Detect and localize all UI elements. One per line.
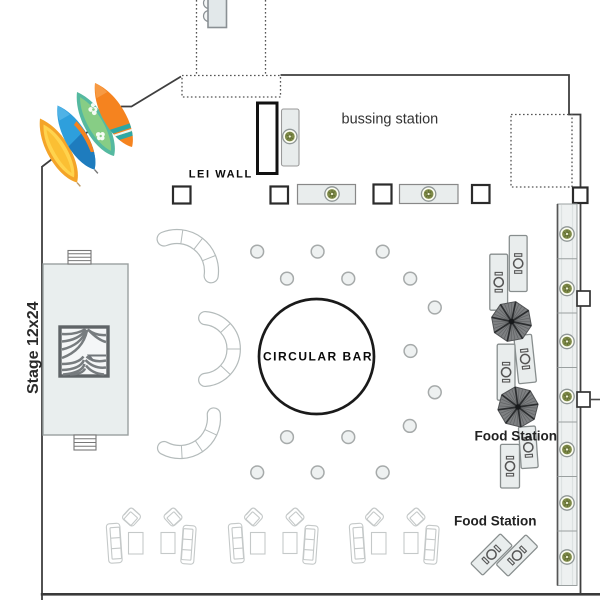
svg-text:CIRCULAR BAR: CIRCULAR BAR <box>263 350 373 364</box>
svg-text:Food Station: Food Station <box>454 514 536 529</box>
svg-text:bussing station: bussing station <box>342 112 439 128</box>
svg-text:Food Station: Food Station <box>475 429 557 444</box>
svg-text:LEI WALL: LEI WALL <box>189 169 253 181</box>
svg-text:Stage 12x24: Stage 12x24 <box>25 301 42 394</box>
